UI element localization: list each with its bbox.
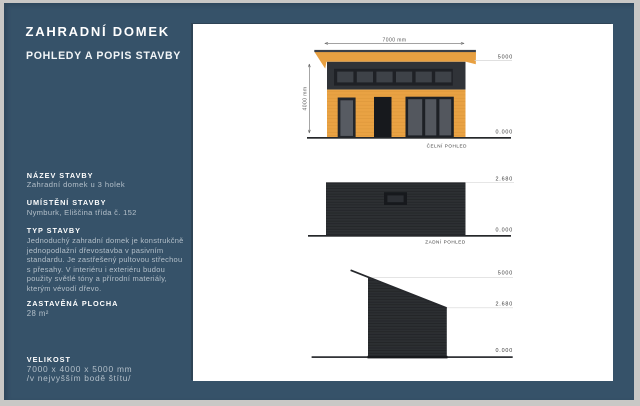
svg-text:0.000: 0.000: [496, 129, 514, 135]
svg-text:5000: 5000: [498, 270, 513, 276]
svg-text:2.680: 2.680: [496, 301, 514, 307]
svg-text:4000 mm: 4000 mm: [303, 87, 309, 111]
svg-text:5000: 5000: [498, 55, 513, 61]
svg-text:0.000: 0.000: [496, 228, 514, 234]
svg-text:0.000: 0.000: [496, 348, 514, 354]
svg-text:2.680: 2.680: [496, 177, 514, 183]
svg-text:ZADNÍ POHLED: ZADNÍ POHLED: [425, 239, 466, 245]
svg-text:7000 mm: 7000 mm: [383, 37, 407, 43]
svg-text:ČELNÍ POHLED: ČELNÍ POHLED: [427, 143, 467, 149]
